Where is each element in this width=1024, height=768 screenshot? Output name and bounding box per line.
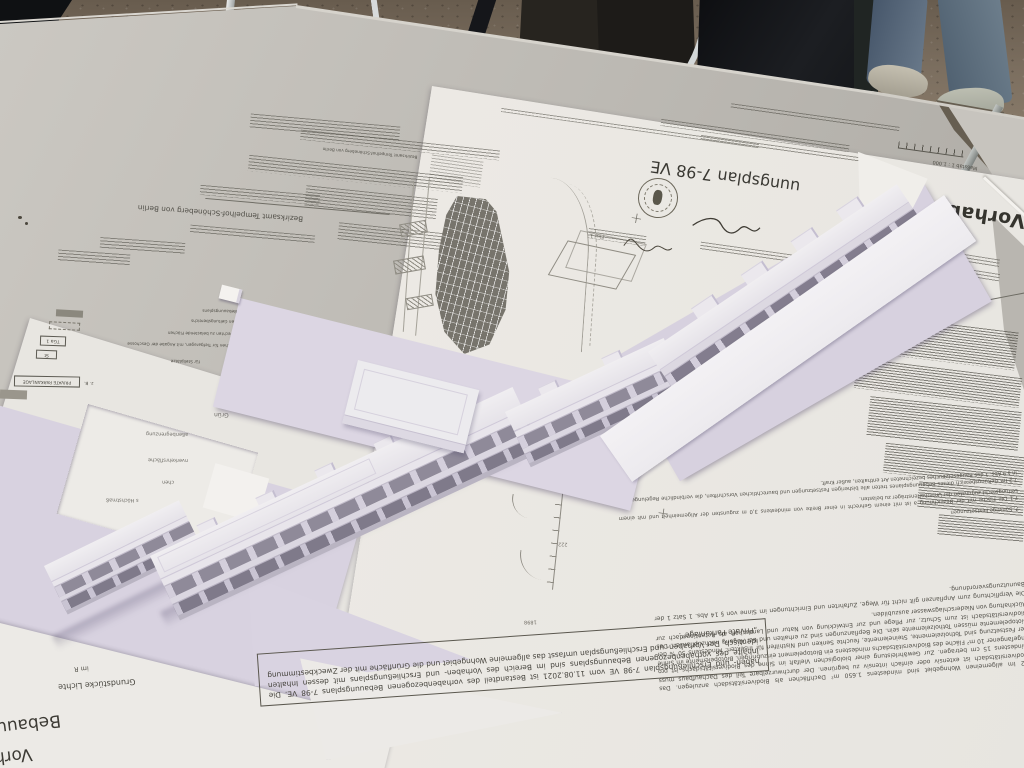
photo-architecture-model-on-plans: Bezirksamt Tempelhof-Schöneberg von Berl…	[0, 0, 1024, 768]
table-crumb	[18, 216, 22, 219]
window-fragment-4: s Höchstmaß	[106, 496, 139, 503]
legend-gray-swatch	[56, 309, 83, 317]
legend-dark-swatch	[0, 390, 27, 400]
window-fragment-0: Grün	[214, 410, 229, 418]
im-fragment-label: im R	[74, 663, 89, 673]
survey-cross-icon: +	[629, 210, 644, 227]
window-fragment-3: chen	[162, 478, 174, 485]
legend-box-st: St	[36, 350, 57, 360]
dim-222: 222	[558, 540, 568, 547]
legend-box-private-park: PRIVATE PARKANLAGE	[14, 375, 80, 387]
window-fragment-1: aßenbegrenzung	[146, 430, 188, 437]
window-fragment-2: nverkehrsfläche	[148, 456, 188, 463]
legend-example-prefix: z. B.	[84, 379, 94, 385]
table-crumb-2	[25, 222, 28, 225]
legend-dashed-swatch	[49, 321, 80, 331]
vorhaben-fragment-label: Vorh	[0, 742, 33, 768]
dim-1898: 1898	[524, 618, 537, 625]
